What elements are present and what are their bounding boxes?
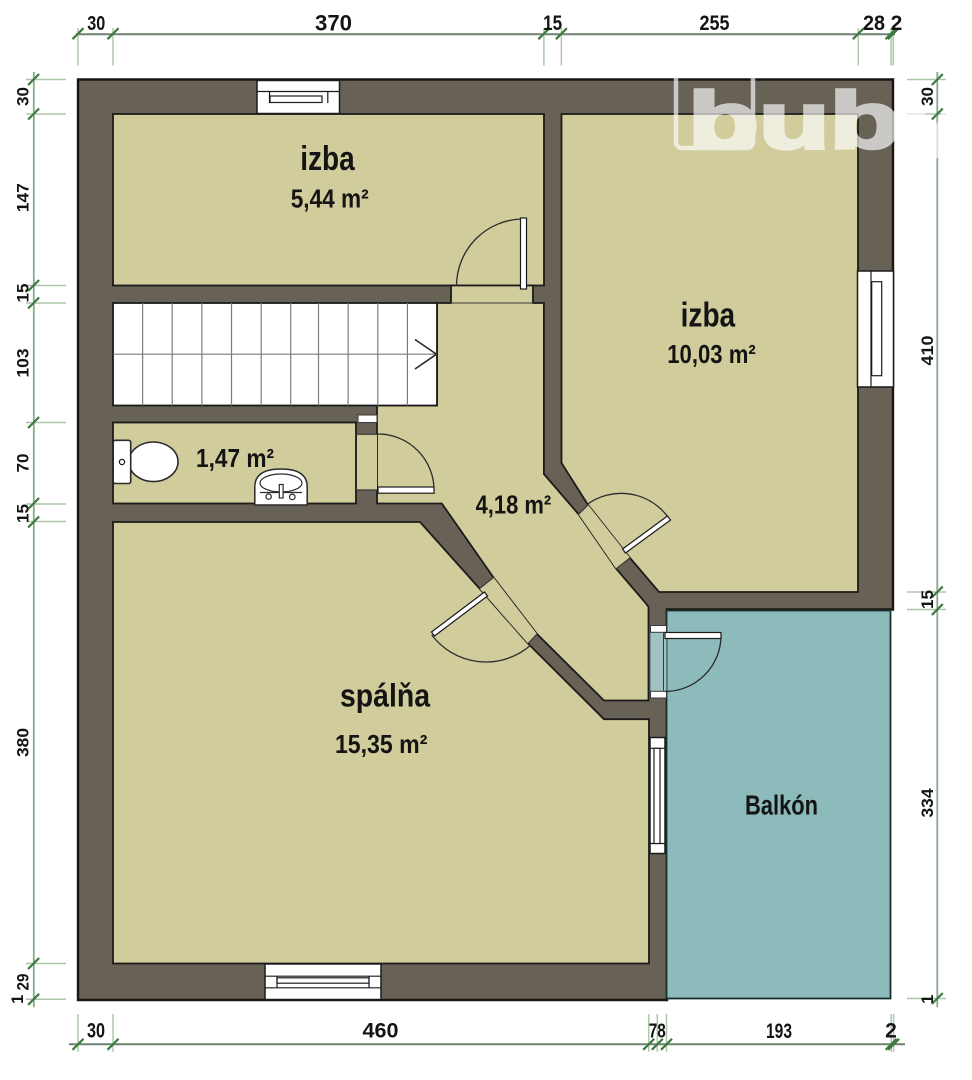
svg-text:izba: izba	[681, 297, 736, 335]
svg-text:Balkón: Balkón	[745, 790, 818, 821]
svg-text:spálňa: spálňa	[340, 678, 430, 714]
svg-text:buby: buby	[688, 76, 966, 165]
svg-text:15: 15	[14, 284, 32, 303]
svg-text:30: 30	[87, 12, 105, 35]
svg-text:380: 380	[14, 728, 32, 757]
svg-text:2: 2	[891, 12, 903, 35]
svg-text:29: 29	[14, 974, 32, 991]
svg-text:70: 70	[14, 454, 32, 473]
svg-text:15: 15	[14, 504, 32, 523]
svg-text:30: 30	[14, 87, 32, 106]
svg-text:1: 1	[9, 995, 27, 1004]
svg-text:15: 15	[543, 12, 562, 35]
svg-text:7: 7	[649, 1021, 658, 1043]
svg-text:izba: izba	[300, 140, 355, 178]
svg-text:193: 193	[766, 1020, 792, 1043]
svg-text:460: 460	[363, 1020, 399, 1043]
svg-text:255: 255	[700, 12, 730, 35]
svg-text:1: 1	[919, 995, 937, 1004]
svg-text:147: 147	[14, 183, 32, 212]
svg-text:103: 103	[14, 349, 32, 378]
svg-text:15,35 m²: 15,35 m²	[335, 729, 428, 759]
svg-text:10,03 m²: 10,03 m²	[667, 339, 756, 369]
svg-text:8: 8	[657, 1021, 666, 1043]
svg-text:410: 410	[919, 336, 937, 366]
svg-text:28: 28	[863, 12, 885, 35]
svg-text:30: 30	[87, 1020, 105, 1043]
svg-text:1,47 m²: 1,47 m²	[196, 443, 274, 473]
svg-text:4,18 m²: 4,18 m²	[476, 490, 552, 520]
svg-text:5,44 m²: 5,44 m²	[291, 186, 369, 214]
svg-text:334: 334	[919, 788, 937, 818]
svg-text:370: 370	[315, 11, 352, 36]
svg-text:2: 2	[885, 1020, 897, 1043]
svg-text:15: 15	[919, 590, 937, 609]
